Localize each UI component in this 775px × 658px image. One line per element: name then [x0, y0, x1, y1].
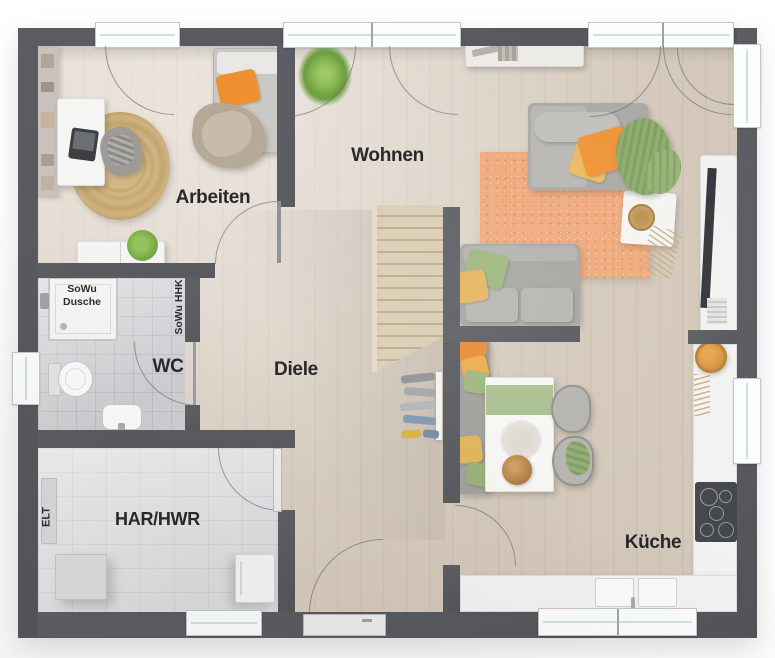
room-label-har-hwr: HAR/HWR — [95, 510, 220, 529]
annotation-sowu-line1: SoWu — [50, 283, 114, 296]
annotation-sowu-line2: Dusche — [50, 296, 114, 309]
kitchen-sink-basin-left — [595, 578, 634, 607]
wall-outer-left — [18, 28, 38, 638]
dried-twig-decor — [694, 374, 710, 416]
window-wohnen-top-left — [283, 22, 461, 48]
wc-sink — [102, 404, 142, 430]
door-leaf-har — [273, 448, 282, 512]
bookshelf — [38, 48, 58, 198]
toilet-bowl — [58, 361, 93, 397]
room-label-diele: Diele — [250, 360, 342, 380]
dried-bouquet — [500, 420, 542, 460]
floor-plan: Arbeiten Wohnen WC Diele HAR/HWR Küche S… — [0, 0, 775, 658]
tv-lowboard — [700, 155, 737, 332]
wall-wohnen-kueche-stub — [688, 330, 737, 344]
wall-diele-kueche — [443, 565, 460, 612]
annotation-sowu-hhk: SoWu HHK — [169, 274, 189, 340]
stair-stringer — [372, 205, 377, 372]
door-leaf-arbeiten — [277, 201, 281, 263]
wall-har-right — [278, 510, 295, 612]
laptop — [68, 127, 99, 161]
wall-wc-right-lower — [185, 405, 200, 430]
white-appliance — [235, 554, 275, 603]
window-arbeiten-top — [95, 22, 180, 48]
annotation-sowu-dusche: SoWu Dusche — [50, 283, 114, 308]
potted-plant-sideboard — [127, 230, 158, 261]
window-wohnen-top-right — [588, 22, 734, 48]
window-kueche-right — [733, 378, 761, 464]
shoes-row-5 — [401, 429, 422, 438]
wall-stairs-living — [443, 207, 460, 503]
room-label-kueche: Küche — [600, 533, 706, 553]
dining-chair-1 — [551, 385, 591, 433]
kitchen-sink-basin-right — [638, 578, 677, 607]
room-label-arbeiten: Arbeiten — [158, 188, 268, 208]
shower-head — [40, 293, 49, 309]
room-label-wohnen: Wohnen — [330, 146, 445, 166]
window-har-bottom — [186, 610, 262, 636]
washing-machine — [55, 554, 107, 600]
shoes-row-5b — [423, 429, 440, 439]
fruit-bowl — [695, 341, 727, 373]
window-kueche-bottom — [538, 608, 697, 636]
window-wc-left — [12, 352, 40, 405]
wall-wc-har — [18, 430, 295, 448]
copper-bowl — [502, 455, 532, 485]
entrance-door-panel — [303, 614, 386, 636]
annotation-elt: ELT — [37, 499, 57, 536]
window-right-top — [733, 44, 761, 128]
wall-dining-top — [443, 326, 580, 342]
room-label-wc: WC — [140, 357, 196, 377]
